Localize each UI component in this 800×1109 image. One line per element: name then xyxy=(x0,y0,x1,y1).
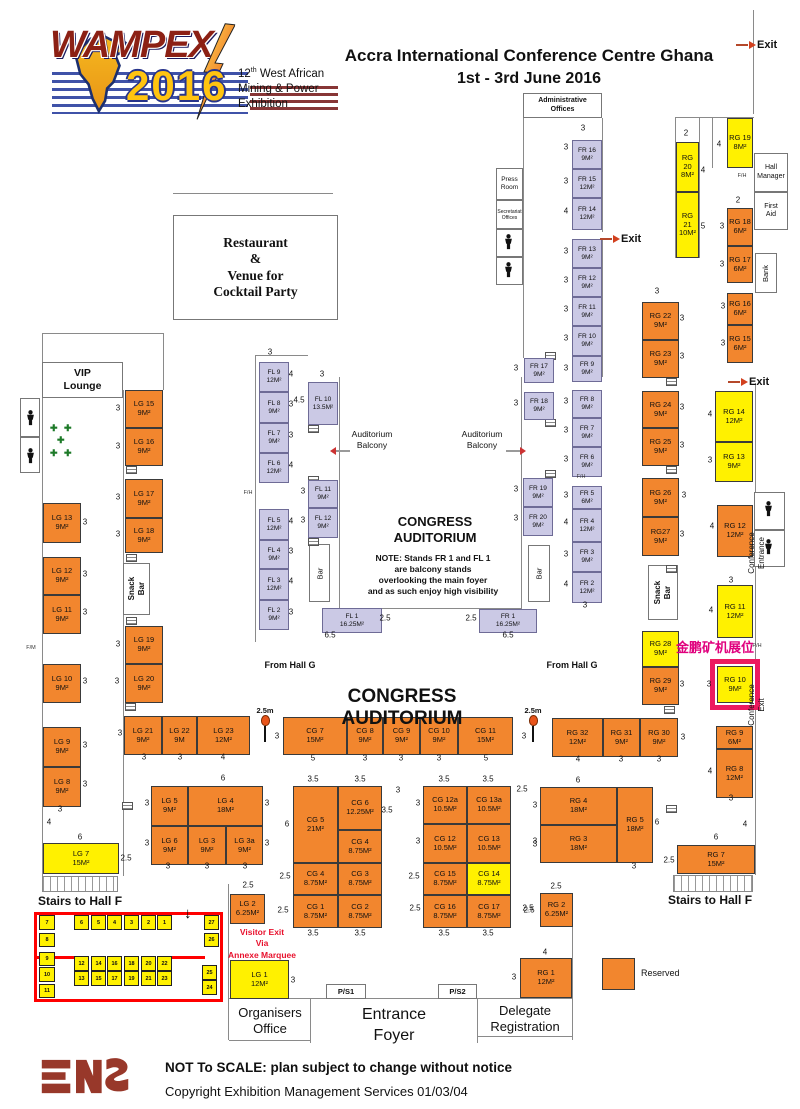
booth-size: 9M² xyxy=(581,341,592,349)
booth-lg-19: LG 199M² xyxy=(125,626,163,664)
tagline-number: 12 xyxy=(238,68,251,80)
dim-label: 2.5 xyxy=(465,614,476,623)
booth-size: 9M² xyxy=(533,406,544,414)
wall xyxy=(755,383,756,875)
fire-point-label: 2.5m xyxy=(256,706,273,715)
booth-fl-5: FL 512M² xyxy=(259,509,289,540)
annexe-booth-17: 17 xyxy=(107,971,122,986)
dim-label: 3 xyxy=(564,550,568,559)
booth-fr-14: FR 1412M² xyxy=(572,198,602,230)
exit-arrow-icon xyxy=(749,41,756,49)
booth-cg-12a: CG 12a10.5M² xyxy=(423,786,467,824)
booth-rg-7: RG 715M² xyxy=(677,845,755,874)
dim-label: 2.5 xyxy=(379,614,390,623)
booth-id: FL 11 xyxy=(315,486,331,494)
booth-size: 9M² xyxy=(395,736,408,745)
dim-label: 3 xyxy=(681,733,685,742)
room-bar: Bar xyxy=(309,544,330,602)
booth-fl-9: FL 912M² xyxy=(259,362,289,392)
booth-fr-7: FR 79M² xyxy=(572,418,602,447)
legend-reserved-box xyxy=(602,958,635,990)
dim-label: 2 xyxy=(736,196,740,205)
booth-fr-2: FR 212M² xyxy=(572,572,602,603)
booth-size: 6M² xyxy=(734,309,747,318)
booth-size: 9M² xyxy=(728,462,741,471)
booth-id: FR 9 xyxy=(580,361,594,369)
booth-size: 9M² xyxy=(56,523,69,532)
annexe-red-line xyxy=(172,956,205,959)
wall xyxy=(173,193,333,194)
dim-label: 4 xyxy=(701,166,705,175)
booth-size: 8.75M² xyxy=(304,912,327,921)
booth-size: 9M² xyxy=(138,499,151,508)
booth-fr-6: FR 69M² xyxy=(572,447,602,477)
door-icon xyxy=(308,538,319,546)
text-stairs-to-hall-f: Stairs to Hall F xyxy=(668,894,778,908)
door-icon xyxy=(666,378,677,386)
booth-lg-8: LG 89M² xyxy=(43,767,81,807)
person-icon xyxy=(26,448,35,464)
booth-size: 9M² xyxy=(532,522,543,530)
booth-size: 6M² xyxy=(581,498,592,506)
booth-id: FR 5 xyxy=(580,490,594,498)
booth-size: 9M² xyxy=(581,155,592,163)
booth-size: 12M² xyxy=(579,588,594,596)
dim-label: 3.5 xyxy=(307,929,318,938)
annexe-booth-11: 11 xyxy=(39,984,55,998)
annexe-booth-18: 18 xyxy=(124,956,139,971)
booth-id: FR 1 xyxy=(501,613,515,621)
room-secretariat-offices: Secretariat Offices xyxy=(496,200,523,229)
booth-size: 9M² xyxy=(654,410,667,419)
booth-fr-16: FR 169M² xyxy=(572,140,602,169)
dim-label: 3 xyxy=(564,334,568,343)
room-vip-lounge: VIP Lounge xyxy=(42,362,123,398)
booth-id: FL 12 xyxy=(315,515,332,523)
booth-rg-32: RG 3212M² xyxy=(552,718,603,757)
person-icon xyxy=(504,234,513,250)
booth-rg-5: RG 518M² xyxy=(617,787,653,863)
text-entrance: Entrance Foyer xyxy=(330,1005,458,1047)
booth-size: 6.25M² xyxy=(545,910,568,919)
booth-size: 12.25M² xyxy=(346,808,374,817)
annexe-booth-12: 12 xyxy=(74,956,89,971)
booth-id: FL 5 xyxy=(268,517,281,525)
booth-cg-3: CG 38.75M² xyxy=(338,863,382,895)
exit-arrow-line xyxy=(600,238,612,240)
arrow-line xyxy=(506,450,520,452)
booth-size: 12M² xyxy=(726,774,743,783)
dim-label: 6 xyxy=(221,774,225,783)
annexe-booth-1: 1 xyxy=(157,915,172,930)
text-item: 金鹏矿机展位 xyxy=(676,641,758,656)
wall xyxy=(753,10,754,114)
door-icon xyxy=(666,805,677,813)
booth-size: 9M² xyxy=(581,369,592,377)
booth-size: 9M² xyxy=(359,736,372,745)
booth-cg-13: CG 1310.5M² xyxy=(467,824,511,863)
dim-label: 4 xyxy=(289,461,293,470)
booth-size: 9M² xyxy=(581,433,592,441)
door-icon xyxy=(126,554,137,562)
booth-rg-13: RG 139M² xyxy=(715,442,753,482)
wall xyxy=(602,240,603,377)
booth-size: 10.5M² xyxy=(433,844,456,853)
booth-size: 9M² xyxy=(268,555,279,563)
dim-label: 2.5 xyxy=(550,882,561,891)
balcony-arrow-icon xyxy=(506,447,526,455)
dim-label: 4 xyxy=(543,948,547,957)
dim-label: 2.5 xyxy=(516,785,527,794)
booth-size: 9M xyxy=(174,736,184,745)
booth-id: FR 12 xyxy=(578,275,596,283)
dim-label: 3 xyxy=(145,839,149,848)
exit-label: Exit xyxy=(757,39,777,51)
annexe-booth-9: 9 xyxy=(39,952,55,966)
door-icon xyxy=(126,466,137,474)
dim-label: 3 xyxy=(720,222,724,231)
booth-rg-16: RG 166M² xyxy=(727,293,753,325)
booth-size: 9M² xyxy=(654,359,667,368)
dim-label: 2.5 xyxy=(408,872,419,881)
booth-size: 10.5M² xyxy=(477,844,500,853)
dim-label: 3 xyxy=(265,839,269,848)
dim-label: 3 xyxy=(708,456,712,465)
booth-cg-13a: CG 13a10.5M² xyxy=(467,786,511,824)
booth-id: FR 15 xyxy=(578,176,596,184)
text-from-hall-g: From Hall G xyxy=(260,660,320,670)
booth-size: 6M² xyxy=(734,265,747,274)
footer-note: NOT To SCALE: plan subject to change wit… xyxy=(165,1060,512,1075)
booth-id: FR 8 xyxy=(580,396,594,404)
person-icon xyxy=(764,501,773,517)
wall xyxy=(477,1036,572,1037)
booth-fl-10: FL 1013.5M² xyxy=(308,382,338,425)
room-p-s1: P/S1 xyxy=(326,984,366,999)
dim-label: 4 xyxy=(710,522,714,531)
booth-lg-15: LG 159M² xyxy=(125,390,163,428)
annexe-booth-10: 10 xyxy=(39,967,55,982)
fire-point-label: 2.5m xyxy=(524,706,541,715)
booth-cg-5: CG 521M² xyxy=(293,786,338,863)
room-first-aid: First Aid xyxy=(754,192,788,230)
dim-label: 3 xyxy=(657,755,661,764)
dim-label: 4 xyxy=(708,767,712,776)
booth-cg-16: CG 168.75M² xyxy=(423,895,467,928)
exit-arrow-line xyxy=(736,44,748,46)
booth-size: 9M² xyxy=(137,736,150,745)
text-conference: Conference Exit xyxy=(747,684,767,726)
dim-label: 3.5 xyxy=(354,775,365,784)
text-organisers: Organisers Office xyxy=(229,1005,311,1038)
dim-label: 3 xyxy=(291,976,295,985)
booth-rg-31: RG 319M² xyxy=(603,718,640,757)
booth-size: 9M² xyxy=(654,447,667,456)
dim-label: 3 xyxy=(514,399,518,408)
booth-fr-19: FR 199M² xyxy=(523,478,553,507)
dim-label: 3 xyxy=(83,780,87,789)
dim-label: 3 xyxy=(583,601,587,610)
dim-label: 3 xyxy=(680,314,684,323)
booth-id: FL 9 xyxy=(268,369,281,377)
booth-size: 8.75M² xyxy=(477,912,500,921)
dim-label: 3 xyxy=(680,441,684,450)
dim-label: 2.5 xyxy=(120,854,131,863)
room-label: First Aid xyxy=(764,203,778,220)
booth-size: 12M² xyxy=(725,417,742,426)
booth-lg-16: LG 169M² xyxy=(125,428,163,466)
booth-cg-14: CG 148.75M² xyxy=(467,863,511,895)
door-icon xyxy=(666,565,677,573)
booth-size: 9M² xyxy=(268,615,279,623)
booth-size: 9M² xyxy=(654,686,667,695)
dim-label: 3 xyxy=(289,547,293,556)
booth-fr-11: FR 119M² xyxy=(572,297,602,326)
booth-size: 9M² xyxy=(317,494,328,502)
dim-label: 6.5 xyxy=(502,631,513,640)
door-icon xyxy=(545,470,556,478)
dim-label: 6 xyxy=(655,818,659,827)
booth-size: 9M² xyxy=(138,536,151,545)
booth-lg-7: LG 715M² xyxy=(43,843,119,874)
dim-label: 3 xyxy=(289,608,293,617)
room-label: Bank xyxy=(761,264,770,281)
booth-fr-20: FR 209M² xyxy=(523,507,553,536)
dim-label: 3 xyxy=(682,491,686,500)
booth-fr-8: FR 89M² xyxy=(572,390,602,418)
booth-fl-1: FL 116.25M² xyxy=(322,608,382,633)
booth-fl-11: FL 119M² xyxy=(308,480,338,508)
room-bar: Bar xyxy=(528,545,550,602)
booth-size: 12M² xyxy=(726,612,743,621)
room-hall-manager: Hall Manager xyxy=(754,153,788,192)
dim-label: 3 xyxy=(581,124,585,133)
booth-size: 9M² xyxy=(729,685,742,694)
dim-label: 3 xyxy=(721,302,725,311)
booth-lg-13: LG 139M² xyxy=(43,503,81,543)
booth-size: 9M² xyxy=(533,371,544,379)
wall xyxy=(602,118,603,232)
wall xyxy=(255,355,308,356)
dim-label: 3 xyxy=(268,348,272,357)
dim-label: 3 xyxy=(83,608,87,617)
door-icon xyxy=(122,802,133,810)
wampex-logo: WAMPEX 2016 12th West African Mining & P… xyxy=(38,22,348,127)
booth-fl-3: FL 312M² xyxy=(259,569,289,600)
booth-size: 6.25M² xyxy=(236,909,259,918)
dim-label: 3 xyxy=(564,143,568,152)
dim-label: 3 xyxy=(399,754,403,763)
booth-rg-18: RG 186M² xyxy=(727,208,753,246)
door-icon xyxy=(545,419,556,427)
dim-label: 3 xyxy=(416,799,420,808)
booth-lg-3: LG 39M² xyxy=(188,826,226,865)
booth-cg-17: CG 178.75M² xyxy=(467,895,511,928)
logo-year: 2016 xyxy=(126,62,227,110)
annexe-booth-20: 20 xyxy=(141,956,156,971)
booth-size: 12M² xyxy=(537,978,554,987)
dim-label: 3 xyxy=(564,491,568,500)
wall xyxy=(712,117,713,168)
booth-size: 18M² xyxy=(570,806,587,815)
booth-fr-10: FR 109M² xyxy=(572,326,602,356)
booth-size: 9M² xyxy=(654,321,667,330)
annexe-booth-15: 15 xyxy=(91,971,106,986)
fire-point-stem xyxy=(264,726,266,742)
dim-label: 3 xyxy=(564,426,568,435)
person-icon xyxy=(764,539,773,555)
booth-fl-4: FL 49M² xyxy=(259,540,289,569)
dim-label: 3 xyxy=(680,352,684,361)
arrowhead xyxy=(520,447,526,455)
dim-label: 4 xyxy=(564,207,568,216)
room-label: Snack Bar xyxy=(653,581,672,605)
room-label: Administrative Offices xyxy=(538,97,587,114)
booth-cg-4: CG 48.75M² xyxy=(293,863,338,895)
text-auditorium: Auditorium Balcony xyxy=(452,429,512,451)
booth-rg-4: RG 418M² xyxy=(540,787,617,825)
booth-rg-25: RG 259M² xyxy=(642,428,679,466)
booth-id: FL 2 xyxy=(268,607,281,615)
dim-label: 3 xyxy=(564,177,568,186)
booth-size: 18M² xyxy=(217,806,234,815)
dim-label: 3 xyxy=(301,516,305,525)
dim-label: 3 xyxy=(533,801,537,810)
booth-rg-8: RG 812M² xyxy=(716,749,753,798)
booth-size: 9M² xyxy=(654,537,667,546)
booth-lg-10: LG 109M² xyxy=(43,664,81,703)
dim-label: 3 xyxy=(116,640,120,649)
exit-arrow-icon xyxy=(741,378,748,386)
dim-label: 3 xyxy=(142,753,146,762)
booth-id: FR 20 xyxy=(529,514,547,522)
dim-label: 4 xyxy=(708,410,712,419)
booth-rg-28: RG 289M² xyxy=(642,631,679,667)
dim-label: 3 xyxy=(116,530,120,539)
dim-label: 6 xyxy=(78,833,82,842)
booth-id: FR 7 xyxy=(580,425,594,433)
booth-size: 9M² xyxy=(615,738,628,747)
plant-icon: ✚ xyxy=(64,449,72,458)
dim-label: 3.5 xyxy=(438,929,449,938)
booth-rg-14: RG 1412M² xyxy=(715,391,753,442)
dim-label: 3 xyxy=(564,364,568,373)
dim-label: 3.5 xyxy=(482,929,493,938)
dim-label: 3 xyxy=(178,753,182,762)
booth-id: FR 4 xyxy=(580,518,594,526)
down-arrow-icon: ↓ xyxy=(184,906,192,921)
dim-label: 3 xyxy=(533,840,537,849)
dim-label: 5 xyxy=(311,754,315,763)
dim-label: 3 xyxy=(320,370,324,379)
booth-rg-1: RG 112M² xyxy=(520,958,572,998)
dim-label: 3 xyxy=(514,485,518,494)
booth-size: 9M² xyxy=(56,747,69,756)
booth-lg-2: LG 26.25M² xyxy=(230,894,265,924)
dim-label: 2.5 xyxy=(409,904,420,913)
booth-lg-4: LG 418M² xyxy=(188,786,263,826)
code-label: F/H xyxy=(577,474,586,480)
wall xyxy=(339,377,340,608)
booth-size: 9M² xyxy=(268,408,279,416)
booth-size: 9M² xyxy=(654,498,667,507)
booth-size: 9M² xyxy=(581,557,592,565)
text-note-stands-fr-1-and-fl-1: NOTE: Stands FR 1 and FL 1 are balcony s… xyxy=(358,553,508,597)
booth-size: 9M² xyxy=(201,846,214,855)
dim-label: 3 xyxy=(512,973,516,982)
dim-label: 2.5 xyxy=(277,906,288,915)
text-visitor-exit: Visitor Exit Via Annexe Marquee xyxy=(224,927,300,961)
booth-size: 8.75M² xyxy=(348,912,371,921)
annexe-booth-6: 6 xyxy=(74,915,89,930)
footer-copyright: Copyright Exhibition Management Services… xyxy=(165,1084,468,1099)
exit-label: Exit xyxy=(749,376,769,388)
booth-id: RG 20 xyxy=(677,154,698,171)
booth-size: 12M² xyxy=(569,738,586,747)
annexe-booth-8: 8 xyxy=(39,933,55,947)
dim-label: 4 xyxy=(289,370,293,379)
exit-sign: Exit xyxy=(736,39,777,51)
door-icon xyxy=(664,706,675,714)
page-title: Accra International Conference Centre Gh… xyxy=(340,46,718,66)
booth-size: 21M² xyxy=(307,825,324,834)
booth-fr-12: FR 129M² xyxy=(572,268,602,297)
fire-point-stem xyxy=(532,726,534,742)
dim-label: 3 xyxy=(83,570,87,579)
code-label: F/H xyxy=(244,490,253,496)
stairs-hatch xyxy=(673,875,753,892)
booth-size: 9M² xyxy=(268,438,279,446)
booth-size: 9M² xyxy=(56,787,69,796)
booth-id: FL 4 xyxy=(268,547,281,555)
dim-label: 3.5 xyxy=(307,775,318,784)
booth-fr-18: FR 189M² xyxy=(524,392,554,420)
booth-id: FR 19 xyxy=(529,485,547,493)
booth-lg-18: LG 189M² xyxy=(125,518,163,553)
booth-rg-20: RG 208M² xyxy=(676,142,699,192)
booth-size: 8.75M² xyxy=(433,912,456,921)
fire-point-icon xyxy=(529,715,538,726)
plant-icon: ✚ xyxy=(57,436,65,445)
dim-label: 3 xyxy=(396,786,400,795)
booth-lg-21: LG 219M² xyxy=(124,716,162,755)
text-congress: CONGRESS AUDITORIUM xyxy=(368,514,502,545)
dim-label: 5 xyxy=(484,754,488,763)
booth-id: FL 1 xyxy=(346,613,359,621)
dim-label: 3 xyxy=(564,247,568,256)
dim-label: 3 xyxy=(83,677,87,686)
booth-size: 18M² xyxy=(570,844,587,853)
dim-label: 3.5 xyxy=(482,775,493,784)
booth-id: FR 10 xyxy=(578,333,596,341)
plant-icon: ✚ xyxy=(50,424,58,433)
booth-size: 15M² xyxy=(72,859,89,868)
room-snack-bar: Snack Bar xyxy=(123,563,150,615)
booth-id: FR 18 xyxy=(530,398,548,406)
dim-label: 3 xyxy=(729,794,733,803)
booth-rg-2: RG 26.25M² xyxy=(540,893,573,927)
dim-label: 3.5 xyxy=(381,806,392,815)
dim-label: 3 xyxy=(619,755,623,764)
annexe-booth-16: 16 xyxy=(107,956,122,971)
dim-label: 3 xyxy=(680,680,684,689)
dim-label: 3 xyxy=(720,260,724,269)
booth-size: 12M² xyxy=(251,980,268,989)
logo-tagline: 12th West African Mining & Power Exhibit… xyxy=(238,66,324,112)
wall xyxy=(477,998,572,999)
booth-size: 6M² xyxy=(728,738,741,747)
booth-rg-17: RG 176M² xyxy=(727,246,753,283)
